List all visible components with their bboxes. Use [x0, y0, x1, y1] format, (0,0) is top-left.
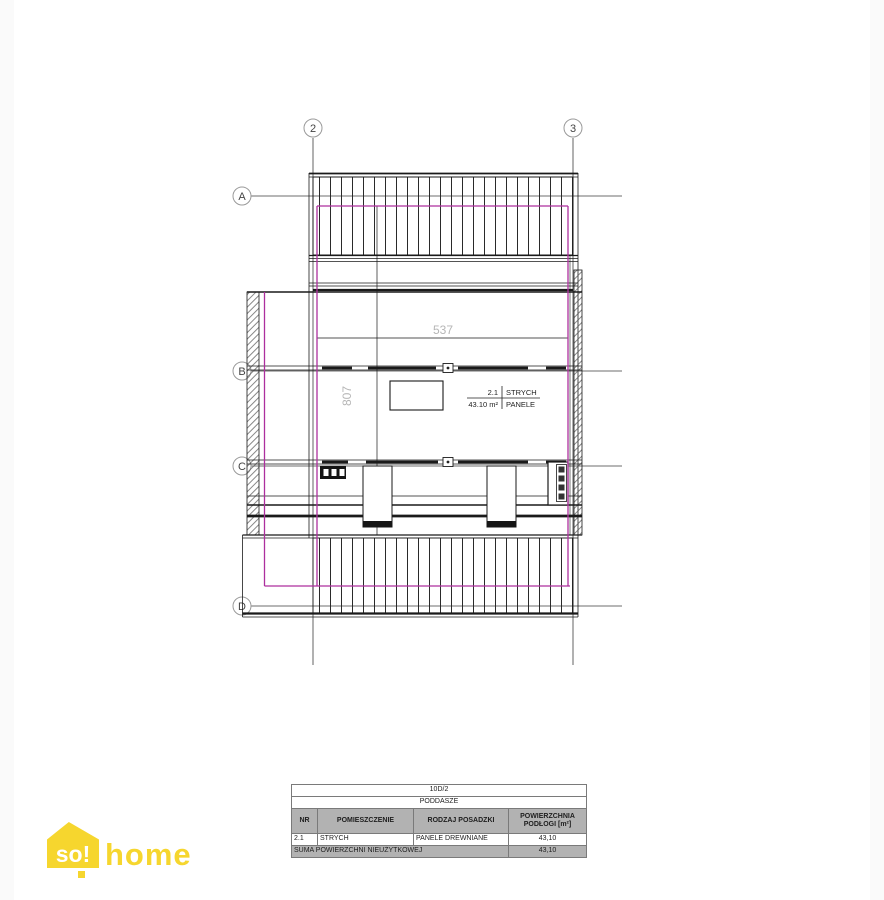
floor-plan-page: 2 3 A B C D	[0, 0, 884, 900]
cell-floor-type: PANELE DREWNIANE	[414, 834, 509, 846]
grid-label-b: B	[238, 366, 245, 378]
logo-suffix: home	[105, 843, 192, 868]
cell-room: STRYCH	[318, 834, 414, 846]
area-summary-table: 10D/2 PODDASZE NR POMIESZCZENIE RODZAJ P…	[291, 784, 587, 858]
cell-nr: 2.1	[292, 834, 318, 846]
grid-label-c: C	[238, 461, 246, 473]
chimney-right	[487, 466, 516, 527]
dimension-height: 807	[340, 386, 354, 406]
room-stamp: 2.1 STRYCH 43.10 m² PANELE	[467, 386, 540, 409]
floor-plan-drawing: 2 3 A B C D	[0, 0, 884, 780]
room-area: 43.10 m²	[468, 400, 498, 409]
level-name: PODDASZE	[292, 797, 587, 809]
table-row: 2.1 STRYCH PANELE DREWNIANE 43,10	[292, 834, 587, 846]
vent-block	[320, 466, 346, 479]
grid-label-3: 3	[570, 123, 576, 135]
logo-prefix: so!	[56, 843, 91, 868]
col-header-area: POWIERZCHNIA PODŁOGI [m²]	[509, 809, 587, 834]
col-header-room: POMIESZCZENIE	[318, 809, 414, 834]
sum-value: 43,10	[509, 846, 587, 858]
room-name: STRYCH	[506, 388, 537, 397]
grid-label-a: A	[238, 191, 246, 203]
project-id: 10D/2	[292, 785, 587, 797]
grid-label-d: D	[238, 601, 246, 613]
grid-label-2: 2	[310, 123, 316, 135]
col-header-nr: NR	[292, 809, 318, 834]
sum-label: SUMA POWIERZCHNI NIEUŻYTKOWEJ	[292, 846, 509, 858]
duct-shaft	[548, 462, 568, 505]
cell-area: 43,10	[509, 834, 587, 846]
chimney-left	[363, 466, 392, 527]
room-number: 2.1	[488, 388, 498, 397]
room-floor: PANELE	[506, 400, 535, 409]
sohome-logo: so! home	[47, 822, 192, 868]
dimension-width: 537	[433, 323, 453, 337]
roof-window	[390, 381, 443, 410]
logo-exclamation-dot	[78, 871, 85, 878]
col-header-floor-type: RODZAJ POSADZKI	[414, 809, 509, 834]
house-icon: so!	[47, 822, 99, 868]
